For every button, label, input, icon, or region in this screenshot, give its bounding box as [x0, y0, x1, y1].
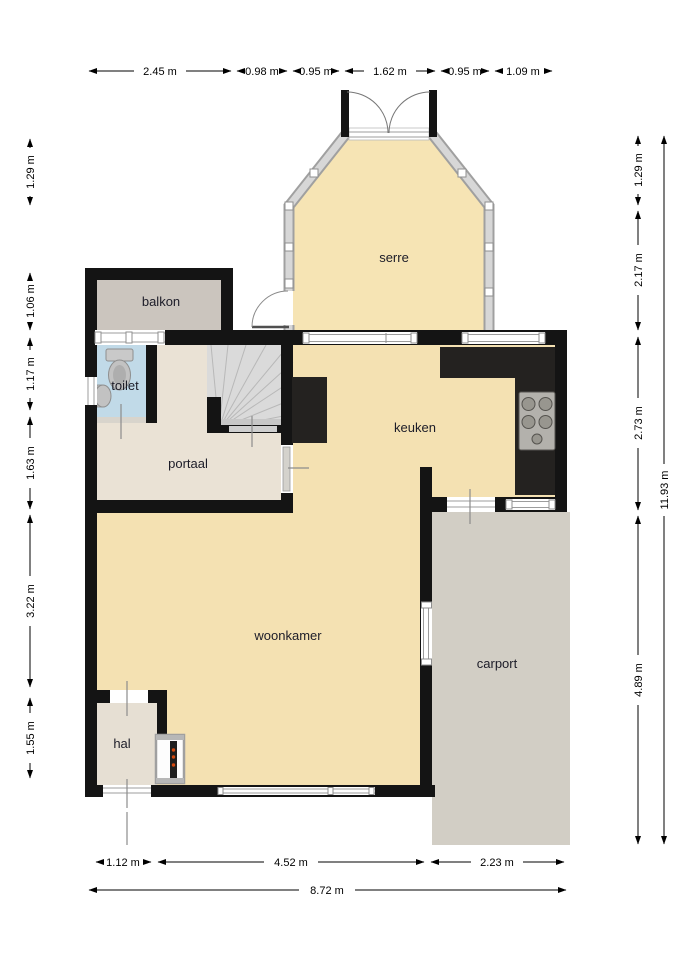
dim-top-2: 0.98 m — [245, 66, 279, 78]
room-label-serre: serre — [379, 250, 409, 265]
dim-bottom-1: 1.12 m — [106, 857, 140, 869]
sink-icon — [95, 385, 111, 407]
room-carport — [432, 512, 570, 845]
dim-right-1: 1.29 m — [633, 153, 645, 187]
meter-cabinet — [156, 735, 184, 783]
room-label-keuken: keuken — [394, 420, 436, 435]
dim-right-4: 4.89 m — [633, 663, 645, 697]
dim-top-3: 0.95 m — [299, 66, 333, 78]
dim-right-3: 2.73 m — [633, 406, 645, 440]
door-keuken-carport — [447, 497, 495, 512]
dim-left-4: 1.63 m — [25, 446, 37, 480]
dim-top-4: 1.62 m — [373, 66, 407, 78]
dim-left-3: 1.17 m — [25, 357, 37, 391]
room-label-portaal: portaal — [168, 456, 208, 471]
dim-bottom-total: 8.72 m — [310, 885, 344, 897]
dim-right-2: 2.17 m — [633, 253, 645, 287]
window-serre-keuken-left — [303, 332, 417, 344]
dim-left-5: 3.22 m — [25, 584, 37, 618]
dim-left-6: 1.55 m — [25, 721, 37, 755]
dim-bottom-3: 2.23 m — [480, 857, 514, 869]
window-balkon-toilet — [95, 330, 165, 345]
window-woonkamer-carport — [421, 602, 432, 665]
floorplan-drawing: serre balkon toilet portaal keuken woonk… — [0, 0, 679, 960]
serre-side-door — [252, 291, 289, 327]
room-serre — [252, 90, 493, 332]
dim-bottom-2: 4.52 m — [274, 857, 308, 869]
window-toilet — [85, 377, 97, 405]
dim-left-1: 1.29 m — [25, 155, 37, 189]
window-serre-keuken-right — [462, 332, 545, 344]
room-label-hal: hal — [113, 736, 130, 751]
room-label-toilet: toilet — [111, 378, 139, 393]
dim-top-1: 2.45 m — [143, 66, 177, 78]
room-label-woonkamer: woonkamer — [253, 628, 322, 643]
serre-double-door — [341, 90, 437, 140]
dim-top-6: 1.09 m — [506, 66, 540, 78]
door-portaal-keuken — [281, 445, 293, 493]
window-woonkamer-front — [218, 787, 375, 795]
dim-right-total: 11.93 m — [659, 471, 671, 510]
dim-left-2: 1.06 m — [25, 284, 37, 318]
door-hal-woonkamer — [110, 690, 148, 703]
window-keuken-carport — [506, 499, 555, 510]
stove-icon — [519, 392, 555, 450]
dim-top-5: 0.95 m — [448, 66, 482, 78]
room-label-balkon: balkon — [142, 294, 180, 309]
floorplan-page: serre balkon toilet portaal keuken woonk… — [0, 0, 679, 960]
room-label-carport: carport — [477, 656, 518, 671]
stairs-threshold — [229, 426, 277, 432]
